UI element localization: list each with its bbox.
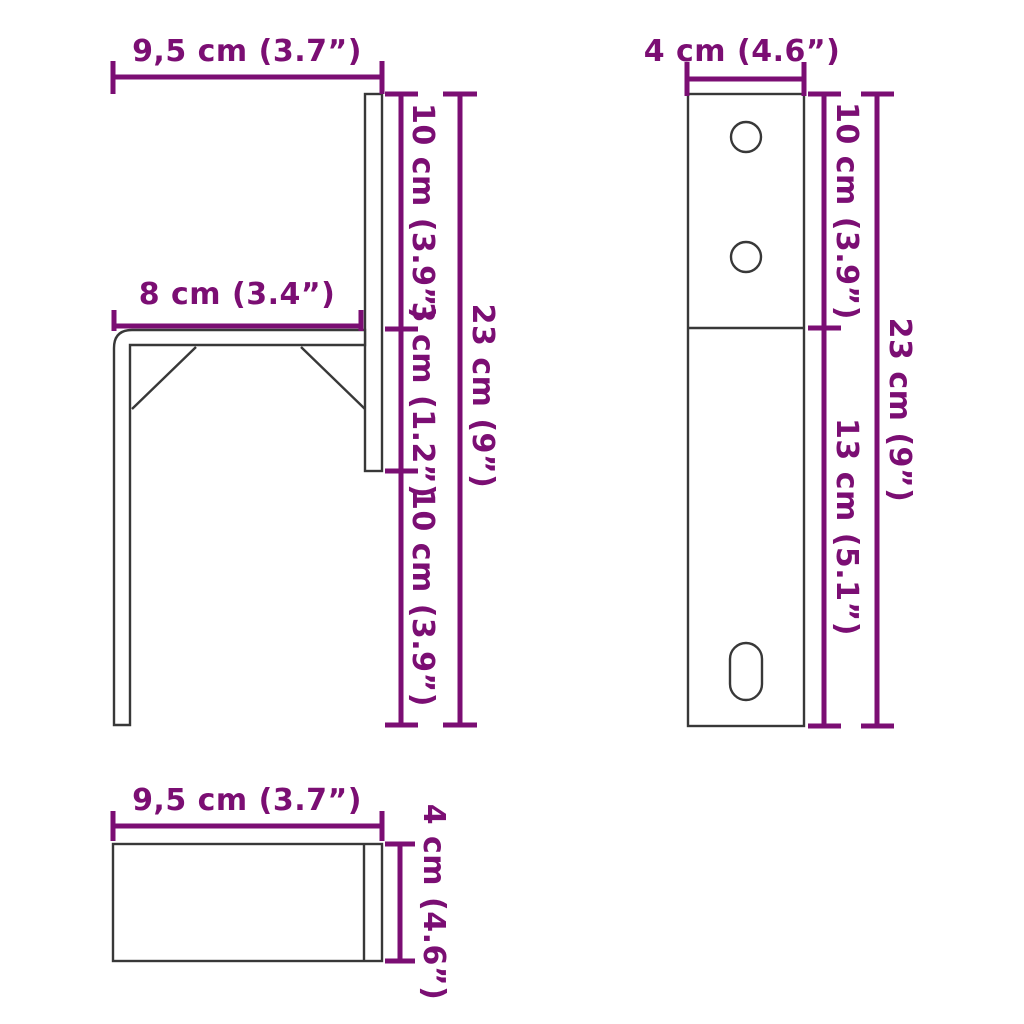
front-total-label: 23 cm (9”) [882, 318, 917, 503]
diagram-canvas: 9,5 cm (3.7”) 8 cm (3.4”) 10 cm (3.9”) 3… [0, 0, 1024, 1024]
side-upper-segment-label: 10 cm (3.9”) [405, 103, 440, 321]
side-total-label: 23 cm (9”) [465, 304, 500, 489]
front-plate [688, 94, 804, 726]
front-width-label: 4 cm (4.6”) [644, 34, 841, 69]
top-depth-dimension [385, 844, 415, 961]
side-gusset-left [132, 347, 196, 409]
side-width-label: 9,5 cm (3.7”) [132, 34, 362, 69]
side-lower-segment-label: 10 cm (3.9”) [405, 489, 440, 707]
front-slot-hole [730, 643, 762, 700]
side-vertical-plate [365, 94, 382, 471]
side-view: 9,5 cm (3.7”) 8 cm (3.4”) 10 cm (3.9”) 3… [113, 34, 500, 725]
front-upper-segment-label: 10 cm (3.9”) [829, 102, 864, 320]
bracket-dimension-diagram: 9,5 cm (3.7”) 8 cm (3.4”) 10 cm (3.9”) 3… [0, 0, 1024, 1024]
side-gusset-right [301, 347, 365, 409]
top-view: 9,5 cm (3.7”) 4 cm (4.6”) [113, 783, 451, 1000]
side-arm-label: 8 cm (3.4”) [139, 277, 336, 312]
side-arm-dimension [114, 310, 361, 331]
top-width-label: 9,5 cm (3.7”) [132, 783, 362, 818]
front-lower-segment-label: 13 cm (5.1”) [829, 418, 864, 636]
top-depth-label: 4 cm (4.6”) [416, 804, 451, 1001]
top-body [113, 844, 382, 961]
front-hole-middle [731, 242, 761, 272]
front-view: 4 cm (4.6”) 10 cm (3.9”) 13 cm (5.1”) 23… [644, 34, 917, 726]
front-hole-top [731, 122, 761, 152]
side-middle-segment-label: 3 cm (1.2”) [405, 302, 440, 499]
